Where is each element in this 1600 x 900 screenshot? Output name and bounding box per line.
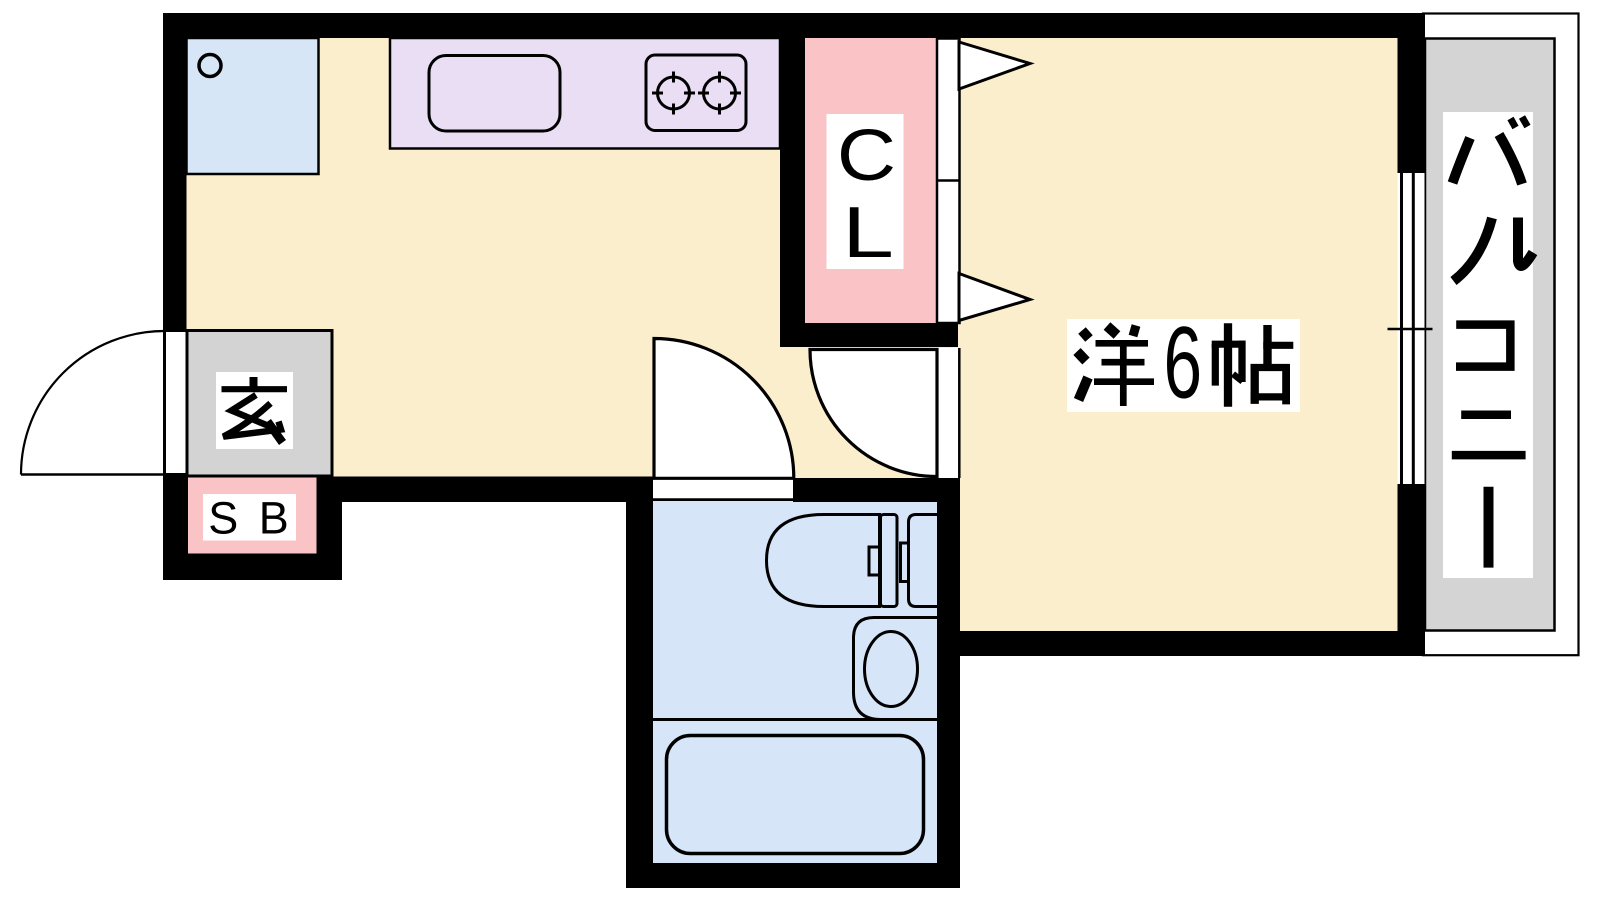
svg-text:S B: S B <box>208 493 293 544</box>
svg-text:L: L <box>842 192 894 273</box>
svg-text:C: C <box>837 115 896 196</box>
svg-text:6: 6 <box>1164 306 1203 419</box>
